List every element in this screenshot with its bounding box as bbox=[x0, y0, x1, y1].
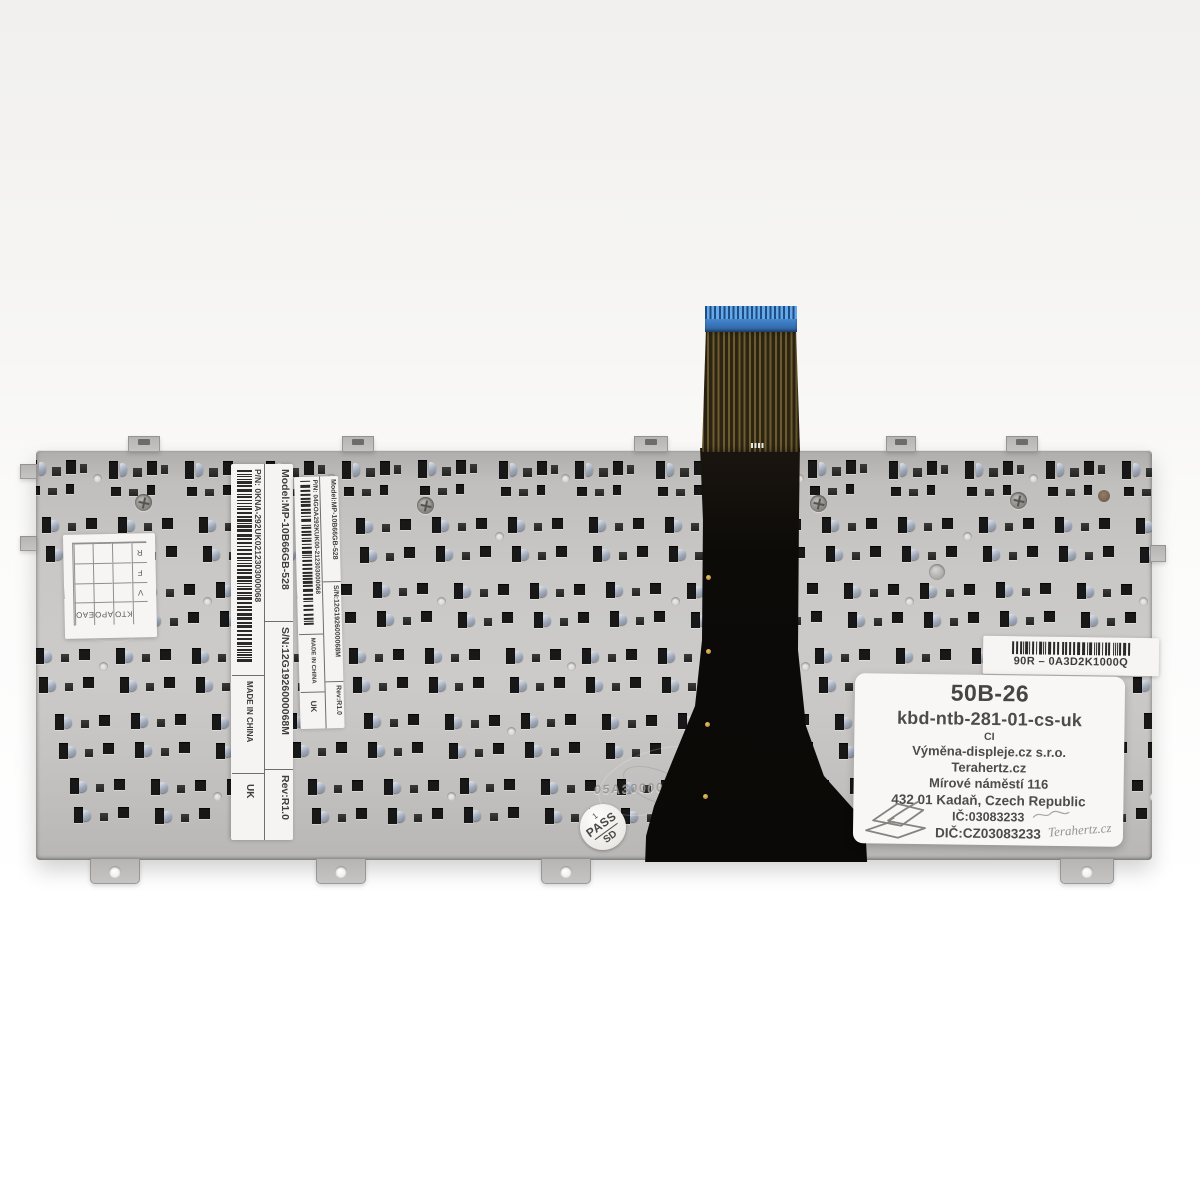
clip-slot bbox=[665, 517, 674, 533]
clip-slot bbox=[462, 552, 470, 560]
signature-scribble bbox=[1031, 808, 1071, 823]
grid-cell: KTO bbox=[113, 602, 132, 625]
clip-slot bbox=[1142, 489, 1151, 496]
clip-slot bbox=[845, 683, 853, 691]
clip-slot bbox=[408, 714, 419, 725]
clip-slot bbox=[1085, 552, 1093, 560]
clip-slot bbox=[160, 782, 168, 793]
clip-slot bbox=[968, 612, 979, 623]
clip-slot bbox=[508, 517, 517, 533]
clip-slot bbox=[841, 654, 849, 662]
clip-slot bbox=[510, 463, 517, 476]
clip-slot bbox=[349, 648, 358, 664]
clip-slot bbox=[1132, 780, 1143, 791]
vent-hole bbox=[1139, 597, 1148, 606]
clip-slot bbox=[458, 612, 467, 628]
barcode-bar bbox=[237, 529, 252, 532]
clip-slot bbox=[161, 748, 169, 756]
clip-slot bbox=[362, 680, 370, 691]
clip-slot bbox=[1055, 517, 1064, 533]
clip-slot bbox=[615, 523, 623, 531]
clip-slot bbox=[377, 611, 386, 627]
clip-slot bbox=[473, 810, 481, 821]
tab-hole bbox=[109, 866, 121, 878]
barcode-bar bbox=[303, 605, 313, 607]
phillips-screw bbox=[1010, 492, 1027, 509]
qc-grid-table: RFVEAOAPOKTO bbox=[72, 541, 148, 626]
made-in: MADE IN CHINA bbox=[232, 676, 264, 774]
clip-slot bbox=[552, 518, 563, 529]
barcode-bar bbox=[237, 602, 252, 604]
laptop-icon bbox=[861, 793, 930, 840]
serial-number: S/N:12G1926000068M bbox=[323, 582, 344, 682]
clip-slot bbox=[615, 746, 623, 757]
barcode-bar bbox=[304, 618, 314, 620]
part-number: P/N: 0KNA-292UK0212303000068 bbox=[253, 469, 263, 602]
barcode-bar bbox=[1029, 641, 1030, 654]
grid-cell: V bbox=[132, 582, 148, 602]
barcode-bar bbox=[1043, 642, 1044, 655]
clip-slot bbox=[212, 714, 221, 730]
barcode-bar bbox=[237, 597, 252, 600]
clip-slot bbox=[368, 742, 377, 758]
clip-slot bbox=[613, 461, 623, 475]
grid-cell: F bbox=[131, 562, 147, 582]
cable-white-mark bbox=[751, 443, 764, 448]
solder-dot bbox=[706, 649, 711, 654]
market-code: UK bbox=[301, 692, 326, 729]
tab-hole bbox=[560, 866, 572, 878]
clip-slot bbox=[658, 487, 668, 496]
barcode-bar bbox=[237, 642, 252, 645]
clip-slot bbox=[1064, 520, 1072, 531]
clip-slot bbox=[386, 553, 394, 561]
barcode-bar bbox=[237, 523, 252, 524]
clip-slot bbox=[626, 649, 637, 660]
sticker-face: Model:MP-10B66GB-528 S/N:12G1926000068M … bbox=[231, 464, 293, 840]
clip-slot bbox=[48, 488, 57, 495]
clip-slot bbox=[397, 677, 408, 688]
barcode-bar bbox=[301, 509, 311, 511]
clip-slot bbox=[109, 461, 118, 479]
clip-slot bbox=[456, 460, 466, 474]
clip-slot bbox=[1000, 611, 1009, 627]
clip-slot bbox=[556, 589, 564, 597]
clip-slot bbox=[678, 549, 686, 560]
clip-slot bbox=[344, 487, 354, 496]
clip-slot bbox=[1009, 614, 1017, 625]
clip-slot bbox=[866, 518, 877, 529]
clip-slot bbox=[318, 748, 326, 756]
barcode-bar bbox=[237, 481, 252, 484]
clip-slot bbox=[175, 714, 186, 725]
clip-slot bbox=[301, 745, 309, 756]
barcode-bar bbox=[303, 578, 313, 580]
phillips-screw bbox=[810, 495, 827, 512]
vent-hole bbox=[93, 474, 102, 483]
clip-slot bbox=[965, 461, 974, 479]
clip-slot bbox=[394, 465, 401, 474]
vent-hole bbox=[495, 532, 504, 541]
clip-slot bbox=[656, 461, 665, 479]
clip-slot bbox=[907, 520, 915, 531]
clip-slot bbox=[83, 677, 94, 688]
clip-slot bbox=[922, 654, 930, 662]
clip-slot bbox=[404, 547, 415, 558]
clip-slot bbox=[64, 717, 72, 728]
clip-slot bbox=[627, 465, 634, 474]
clip-slot bbox=[506, 648, 515, 664]
clip-slot bbox=[860, 464, 867, 473]
barcode-bar bbox=[237, 580, 252, 582]
clip-slot bbox=[220, 611, 229, 627]
clip-slot bbox=[181, 814, 189, 822]
barcode-bar bbox=[237, 538, 252, 540]
clip-slot bbox=[399, 588, 407, 596]
clip-slot bbox=[417, 583, 428, 594]
clip-slot bbox=[822, 517, 831, 533]
clip-slot bbox=[68, 523, 76, 531]
barcode-bar bbox=[1020, 641, 1022, 654]
clip-slot bbox=[1005, 523, 1013, 531]
flat-rivet bbox=[929, 564, 945, 580]
barcode-bar bbox=[1065, 642, 1067, 655]
clip-slot bbox=[667, 651, 675, 662]
clip-slot bbox=[950, 618, 958, 626]
clip-slot bbox=[839, 743, 848, 759]
clip-slot bbox=[512, 546, 521, 562]
barcode-bar bbox=[303, 601, 313, 602]
part-number-cell: P/N: 0KNA-292UK0212303000068 bbox=[232, 464, 264, 676]
barcode-bar bbox=[1016, 641, 1018, 654]
barcode-bar bbox=[237, 586, 252, 587]
barcode-bar bbox=[301, 498, 311, 500]
clip-slot bbox=[678, 713, 687, 729]
clip-slot bbox=[857, 615, 865, 626]
clip-slot bbox=[458, 523, 466, 531]
clip-slot bbox=[464, 807, 473, 823]
clip-slot bbox=[541, 779, 550, 795]
clip-slot bbox=[896, 648, 905, 664]
mounting-tab-top bbox=[886, 436, 916, 452]
clip-slot bbox=[1003, 461, 1013, 475]
clip-slot bbox=[874, 618, 882, 626]
clip-slot bbox=[846, 484, 854, 494]
asus-part-number-sticker: 90R – 0A3D2K1000Q bbox=[983, 636, 1160, 676]
clip-slot bbox=[292, 742, 301, 758]
clip-slot bbox=[216, 582, 225, 598]
clip-slot bbox=[684, 654, 692, 662]
clip-slot bbox=[1099, 518, 1110, 529]
clip-slot bbox=[687, 583, 696, 599]
clip-slot bbox=[1066, 489, 1075, 496]
clip-slot bbox=[1084, 485, 1092, 495]
clip-slot bbox=[379, 683, 387, 691]
barcode-bar bbox=[1077, 642, 1080, 655]
clip-slot bbox=[196, 463, 203, 476]
barcode-bar bbox=[1117, 643, 1118, 656]
clip-slot bbox=[164, 677, 175, 688]
clip-slot bbox=[826, 546, 835, 562]
barcode-bar bbox=[301, 516, 311, 517]
product-code: 50B-26 bbox=[855, 678, 1125, 709]
barcode-bar bbox=[1115, 643, 1116, 656]
clip-slot bbox=[196, 677, 205, 693]
clip-slot bbox=[1103, 546, 1114, 557]
clip-slot bbox=[414, 814, 422, 822]
clip-slot bbox=[1048, 487, 1058, 496]
barcode-bar bbox=[237, 572, 252, 574]
vent-hole bbox=[1029, 474, 1038, 483]
clip-slot bbox=[532, 654, 540, 662]
clip-slot bbox=[373, 582, 382, 598]
clip-slot bbox=[1142, 680, 1150, 691]
clip-slot bbox=[317, 782, 325, 793]
clip-slot bbox=[534, 523, 542, 531]
clip-slot bbox=[808, 460, 817, 478]
grid-cell bbox=[112, 543, 131, 563]
clip-slot bbox=[445, 549, 453, 560]
barcode-bar bbox=[237, 649, 252, 651]
clip-slot bbox=[550, 649, 561, 660]
mounting-tab-top bbox=[128, 436, 160, 452]
tab-notch bbox=[645, 439, 657, 445]
clip-slot bbox=[85, 749, 93, 757]
clip-slot bbox=[397, 811, 405, 822]
tab-notch bbox=[138, 439, 150, 445]
tab-hole bbox=[335, 866, 347, 878]
clip-slot bbox=[964, 584, 975, 595]
clip-slot bbox=[44, 651, 52, 662]
clip-slot bbox=[551, 748, 559, 756]
rust-spot bbox=[1098, 490, 1110, 502]
barcode-bar bbox=[300, 485, 310, 488]
barcode-bar bbox=[237, 508, 252, 510]
clip-slot bbox=[543, 615, 551, 626]
clip-slot bbox=[480, 546, 491, 557]
barcode-bar bbox=[237, 489, 252, 492]
clip-slot bbox=[184, 584, 195, 595]
clip-slot bbox=[400, 519, 411, 530]
clip-slot bbox=[463, 586, 471, 597]
clip-slot bbox=[432, 517, 441, 533]
clip-slot bbox=[582, 648, 591, 664]
barcode-bar bbox=[237, 542, 252, 544]
clip-slot bbox=[846, 460, 856, 474]
clip-slot bbox=[321, 811, 329, 822]
barcode-bar bbox=[302, 544, 312, 545]
clip-slot bbox=[924, 523, 932, 531]
clip-slot bbox=[188, 612, 199, 623]
clip-slot bbox=[1046, 461, 1055, 479]
clip-slot bbox=[436, 546, 445, 562]
tab-notch bbox=[352, 439, 364, 445]
clip-slot bbox=[615, 585, 623, 596]
clip-slot bbox=[42, 517, 51, 533]
barcode-bar bbox=[304, 614, 314, 616]
clip-slot bbox=[469, 649, 480, 660]
barcode-bar bbox=[1062, 642, 1064, 655]
vent-hole bbox=[99, 662, 108, 671]
clip-slot bbox=[606, 582, 615, 598]
barcode-bar bbox=[237, 646, 252, 647]
clip-slot bbox=[669, 546, 678, 562]
barcode-bar bbox=[237, 546, 252, 547]
barcode-bar bbox=[1087, 642, 1088, 655]
clip-slot bbox=[111, 487, 121, 496]
clip-slot bbox=[79, 781, 87, 792]
vent-hole bbox=[1149, 792, 1152, 801]
clip-slot bbox=[900, 463, 907, 476]
clip-slot bbox=[36, 486, 40, 495]
clip-slot bbox=[810, 486, 820, 495]
made-in: MADE IN CHINA bbox=[299, 634, 325, 693]
barcode-bar bbox=[237, 638, 252, 640]
barcode-bar bbox=[1039, 642, 1042, 655]
clip-slot bbox=[593, 546, 602, 562]
clip-slot bbox=[819, 677, 828, 693]
barcode-bar bbox=[1082, 642, 1085, 655]
clip-slot bbox=[66, 484, 74, 494]
clip-slot bbox=[1140, 547, 1149, 563]
clip-slot bbox=[100, 813, 108, 821]
clip-slot bbox=[65, 683, 73, 691]
clip-slot bbox=[1081, 612, 1090, 628]
clip-slot bbox=[177, 785, 185, 793]
part-number-text: 90R – 0A3D2K1000Q bbox=[983, 655, 1159, 669]
solder-dot bbox=[705, 722, 710, 727]
clip-slot bbox=[460, 778, 469, 794]
clip-slot bbox=[1027, 546, 1038, 557]
barcode-bar bbox=[301, 501, 311, 503]
clip-slot bbox=[195, 780, 206, 791]
barcode-bar bbox=[237, 652, 252, 653]
mounting-tab-right bbox=[1150, 545, 1166, 562]
model-number: Model:MP-10B66GB-528 bbox=[265, 464, 293, 622]
clip-slot bbox=[515, 651, 523, 662]
barcode-bar bbox=[301, 519, 311, 522]
clip-slot bbox=[144, 745, 152, 756]
grid-cell bbox=[93, 582, 113, 602]
grid-cell bbox=[93, 563, 113, 583]
clip-slot bbox=[942, 518, 953, 529]
clip-slot bbox=[114, 779, 125, 790]
barcode-bar bbox=[1032, 641, 1034, 654]
barcode-bar bbox=[301, 527, 311, 529]
vent-hole bbox=[561, 474, 570, 483]
clip-slot bbox=[144, 523, 152, 531]
clip-slot bbox=[116, 648, 125, 664]
clip-slot bbox=[844, 717, 852, 728]
grid-cell bbox=[113, 582, 132, 602]
clip-slot bbox=[983, 546, 992, 562]
clip-slot bbox=[352, 780, 363, 791]
clip-slot bbox=[650, 583, 661, 594]
clip-slot bbox=[519, 489, 528, 496]
clip-slot bbox=[1107, 618, 1115, 626]
clip-slot bbox=[382, 524, 390, 532]
clip-slot bbox=[1086, 586, 1094, 597]
barcode-bar bbox=[1113, 643, 1114, 656]
clip-slot bbox=[554, 811, 562, 822]
clip-slot bbox=[470, 464, 477, 473]
barcode-bar bbox=[237, 563, 252, 564]
clip-slot bbox=[59, 743, 68, 759]
barcode-bar bbox=[237, 516, 252, 518]
clip-slot bbox=[550, 782, 558, 793]
clip-slot bbox=[55, 549, 63, 560]
barcode-bar bbox=[237, 494, 252, 495]
clip-slot bbox=[612, 683, 620, 691]
clip-slot bbox=[578, 612, 589, 623]
clip-slot bbox=[1136, 518, 1145, 534]
clip-slot bbox=[393, 782, 401, 793]
clip-slot bbox=[695, 552, 703, 560]
clip-slot bbox=[79, 649, 90, 660]
barcode-bar bbox=[1023, 641, 1024, 654]
clip-slot bbox=[676, 489, 685, 496]
clip-slot bbox=[208, 520, 216, 531]
barcode-bar bbox=[303, 598, 313, 600]
clip-slot bbox=[454, 717, 462, 728]
clip-slot bbox=[61, 654, 69, 662]
clip-slot bbox=[118, 517, 127, 533]
clip-slot bbox=[199, 517, 208, 533]
grid-cell: R bbox=[131, 542, 147, 562]
barcode-bar bbox=[1053, 642, 1055, 655]
qc-grid-sticker: RFVEAOAPOKTO bbox=[63, 533, 157, 639]
clip-slot bbox=[456, 484, 464, 494]
clip-slot bbox=[888, 584, 899, 595]
clip-slot bbox=[493, 743, 504, 754]
barcode-bar bbox=[1025, 641, 1028, 654]
cable-connector-end bbox=[705, 306, 797, 332]
clip-slot bbox=[637, 546, 648, 557]
barcode-bar bbox=[303, 581, 313, 584]
clip-slot bbox=[364, 713, 373, 729]
clip-slot bbox=[48, 680, 56, 691]
clip-slot bbox=[218, 654, 226, 662]
clip-slot bbox=[671, 680, 679, 691]
vent-hole bbox=[447, 792, 456, 801]
clip-slot bbox=[192, 648, 201, 664]
clip-slot bbox=[1068, 549, 1076, 560]
clip-slot bbox=[688, 683, 696, 691]
barcode-bar bbox=[300, 490, 310, 492]
model-barcode-sticker-outer: Model:MP-10B66GB-528 S/N:12G1926000068M … bbox=[231, 464, 293, 840]
clip-slot bbox=[1003, 485, 1011, 495]
mounting-tab-bottom bbox=[541, 858, 591, 884]
clip-slot bbox=[476, 518, 487, 529]
clip-slot bbox=[905, 651, 913, 662]
clip-slot bbox=[1023, 518, 1034, 529]
clip-slot bbox=[976, 463, 983, 476]
clip-slot bbox=[586, 463, 593, 476]
clip-slot bbox=[312, 808, 321, 824]
grid-cell bbox=[74, 563, 94, 583]
clip-slot bbox=[674, 520, 682, 531]
clip-slot bbox=[632, 749, 640, 757]
clip-slot bbox=[599, 468, 608, 477]
clip-slot bbox=[55, 714, 64, 730]
clip-slot bbox=[633, 518, 644, 529]
revision: Rev:R1.0 bbox=[325, 682, 344, 728]
clip-slot bbox=[212, 549, 220, 560]
vent-hole bbox=[437, 597, 446, 606]
barcode-bar bbox=[237, 606, 252, 608]
barcode-bar bbox=[237, 569, 252, 571]
clip-slot bbox=[560, 618, 568, 626]
